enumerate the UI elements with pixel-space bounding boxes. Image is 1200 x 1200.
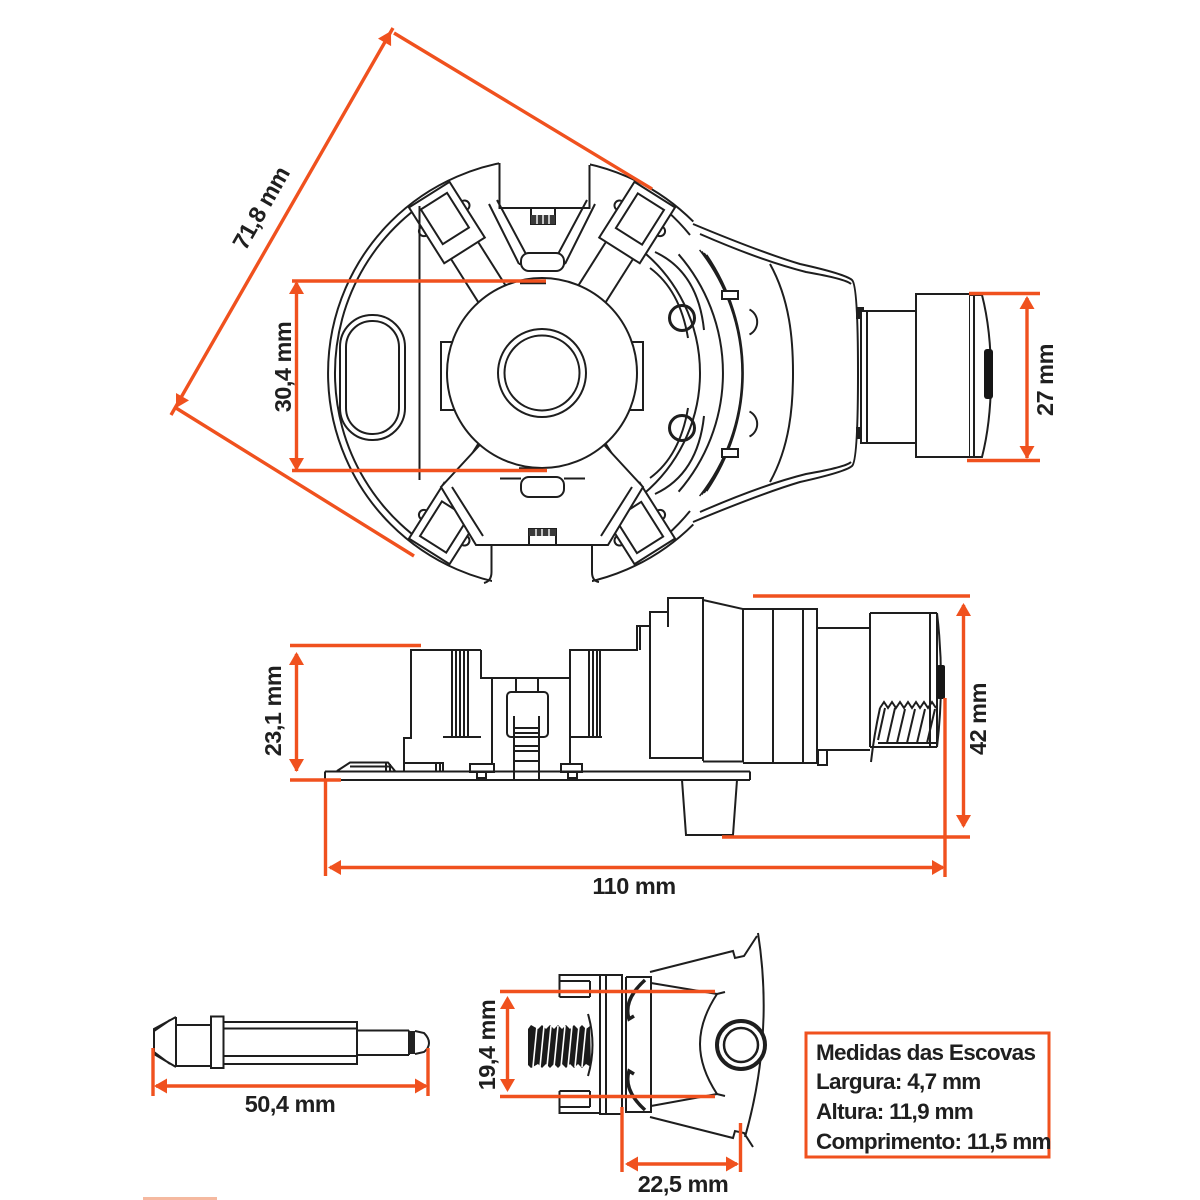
svg-text:23,1 mm: 23,1 mm [260,666,286,757]
svg-text:30,4 mm: 30,4 mm [270,322,296,413]
svg-text:Comprimento: 11,5 mm: Comprimento: 11,5 mm [816,1129,1051,1154]
svg-text:Medidas das Escovas: Medidas das Escovas [816,1040,1036,1065]
svg-text:Altura: 11,9 mm: Altura: 11,9 mm [816,1099,973,1124]
svg-text:71,8 mm: 71,8 mm [227,162,294,254]
svg-text:19,4 mm: 19,4 mm [474,1000,500,1091]
svg-text:22,5 mm: 22,5 mm [638,1171,729,1197]
svg-text:42 mm: 42 mm [965,683,991,755]
svg-text:50,4 mm: 50,4 mm [245,1091,336,1117]
svg-text:27 mm: 27 mm [1032,344,1058,416]
svg-text:110 mm: 110 mm [592,873,675,899]
svg-text:Largura: 4,7 mm: Largura: 4,7 mm [816,1069,981,1094]
